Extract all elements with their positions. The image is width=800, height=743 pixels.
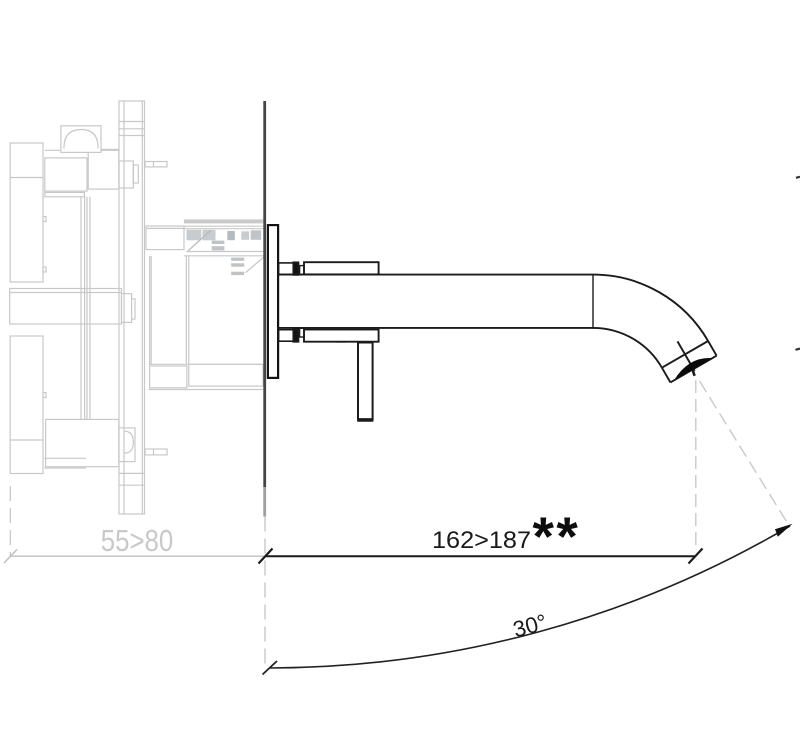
svg-text:55>80: 55>80 bbox=[101, 523, 174, 558]
svg-text:162>187: 162>187 bbox=[432, 527, 531, 554]
svg-text:**: ** bbox=[533, 505, 581, 567]
